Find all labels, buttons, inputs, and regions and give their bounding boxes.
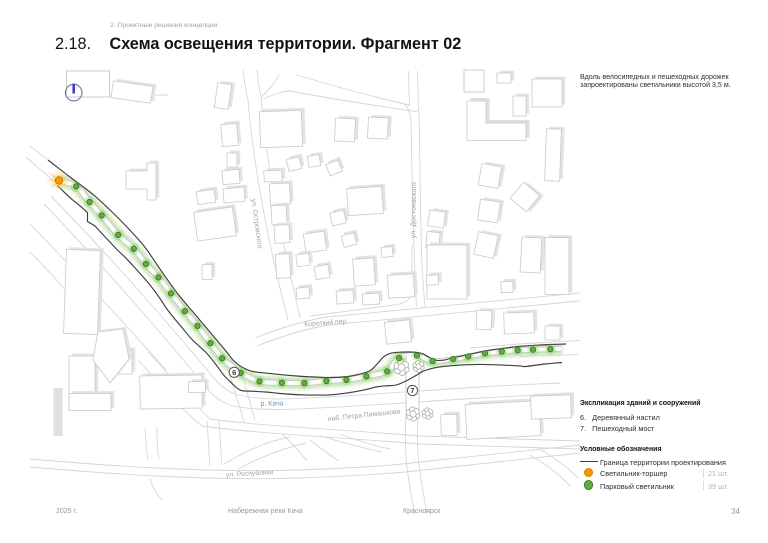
svg-text:наб. Петра Пимашкова: наб. Петра Пимашкова xyxy=(327,407,401,423)
svg-text:ул. Островского: ул. Островского xyxy=(250,198,264,249)
svg-text:ул. Республики: ул. Республики xyxy=(226,468,274,479)
svg-text:7: 7 xyxy=(410,386,414,395)
svg-text:Короткий пер.: Короткий пер. xyxy=(304,317,348,328)
svg-text:ул. Достоевского: ул. Достоевского xyxy=(408,182,418,239)
svg-text:6: 6 xyxy=(232,368,236,377)
svg-text:р. Кача: р. Кача xyxy=(260,400,283,408)
